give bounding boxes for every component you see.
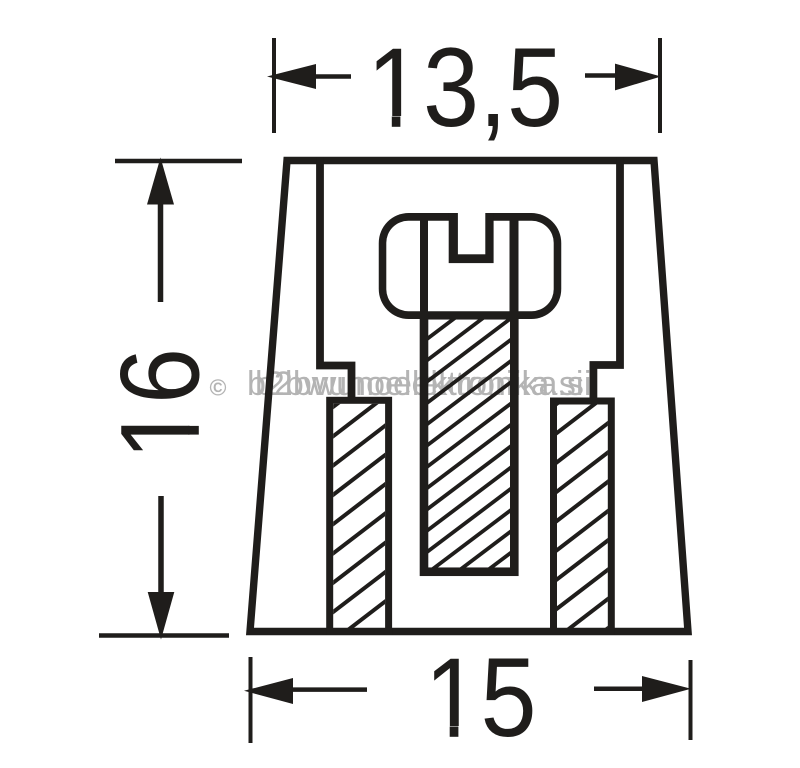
svg-text:15: 15 [424, 635, 536, 760]
svg-text:16: 16 [98, 348, 223, 460]
svg-text:13,5: 13,5 [367, 25, 563, 150]
